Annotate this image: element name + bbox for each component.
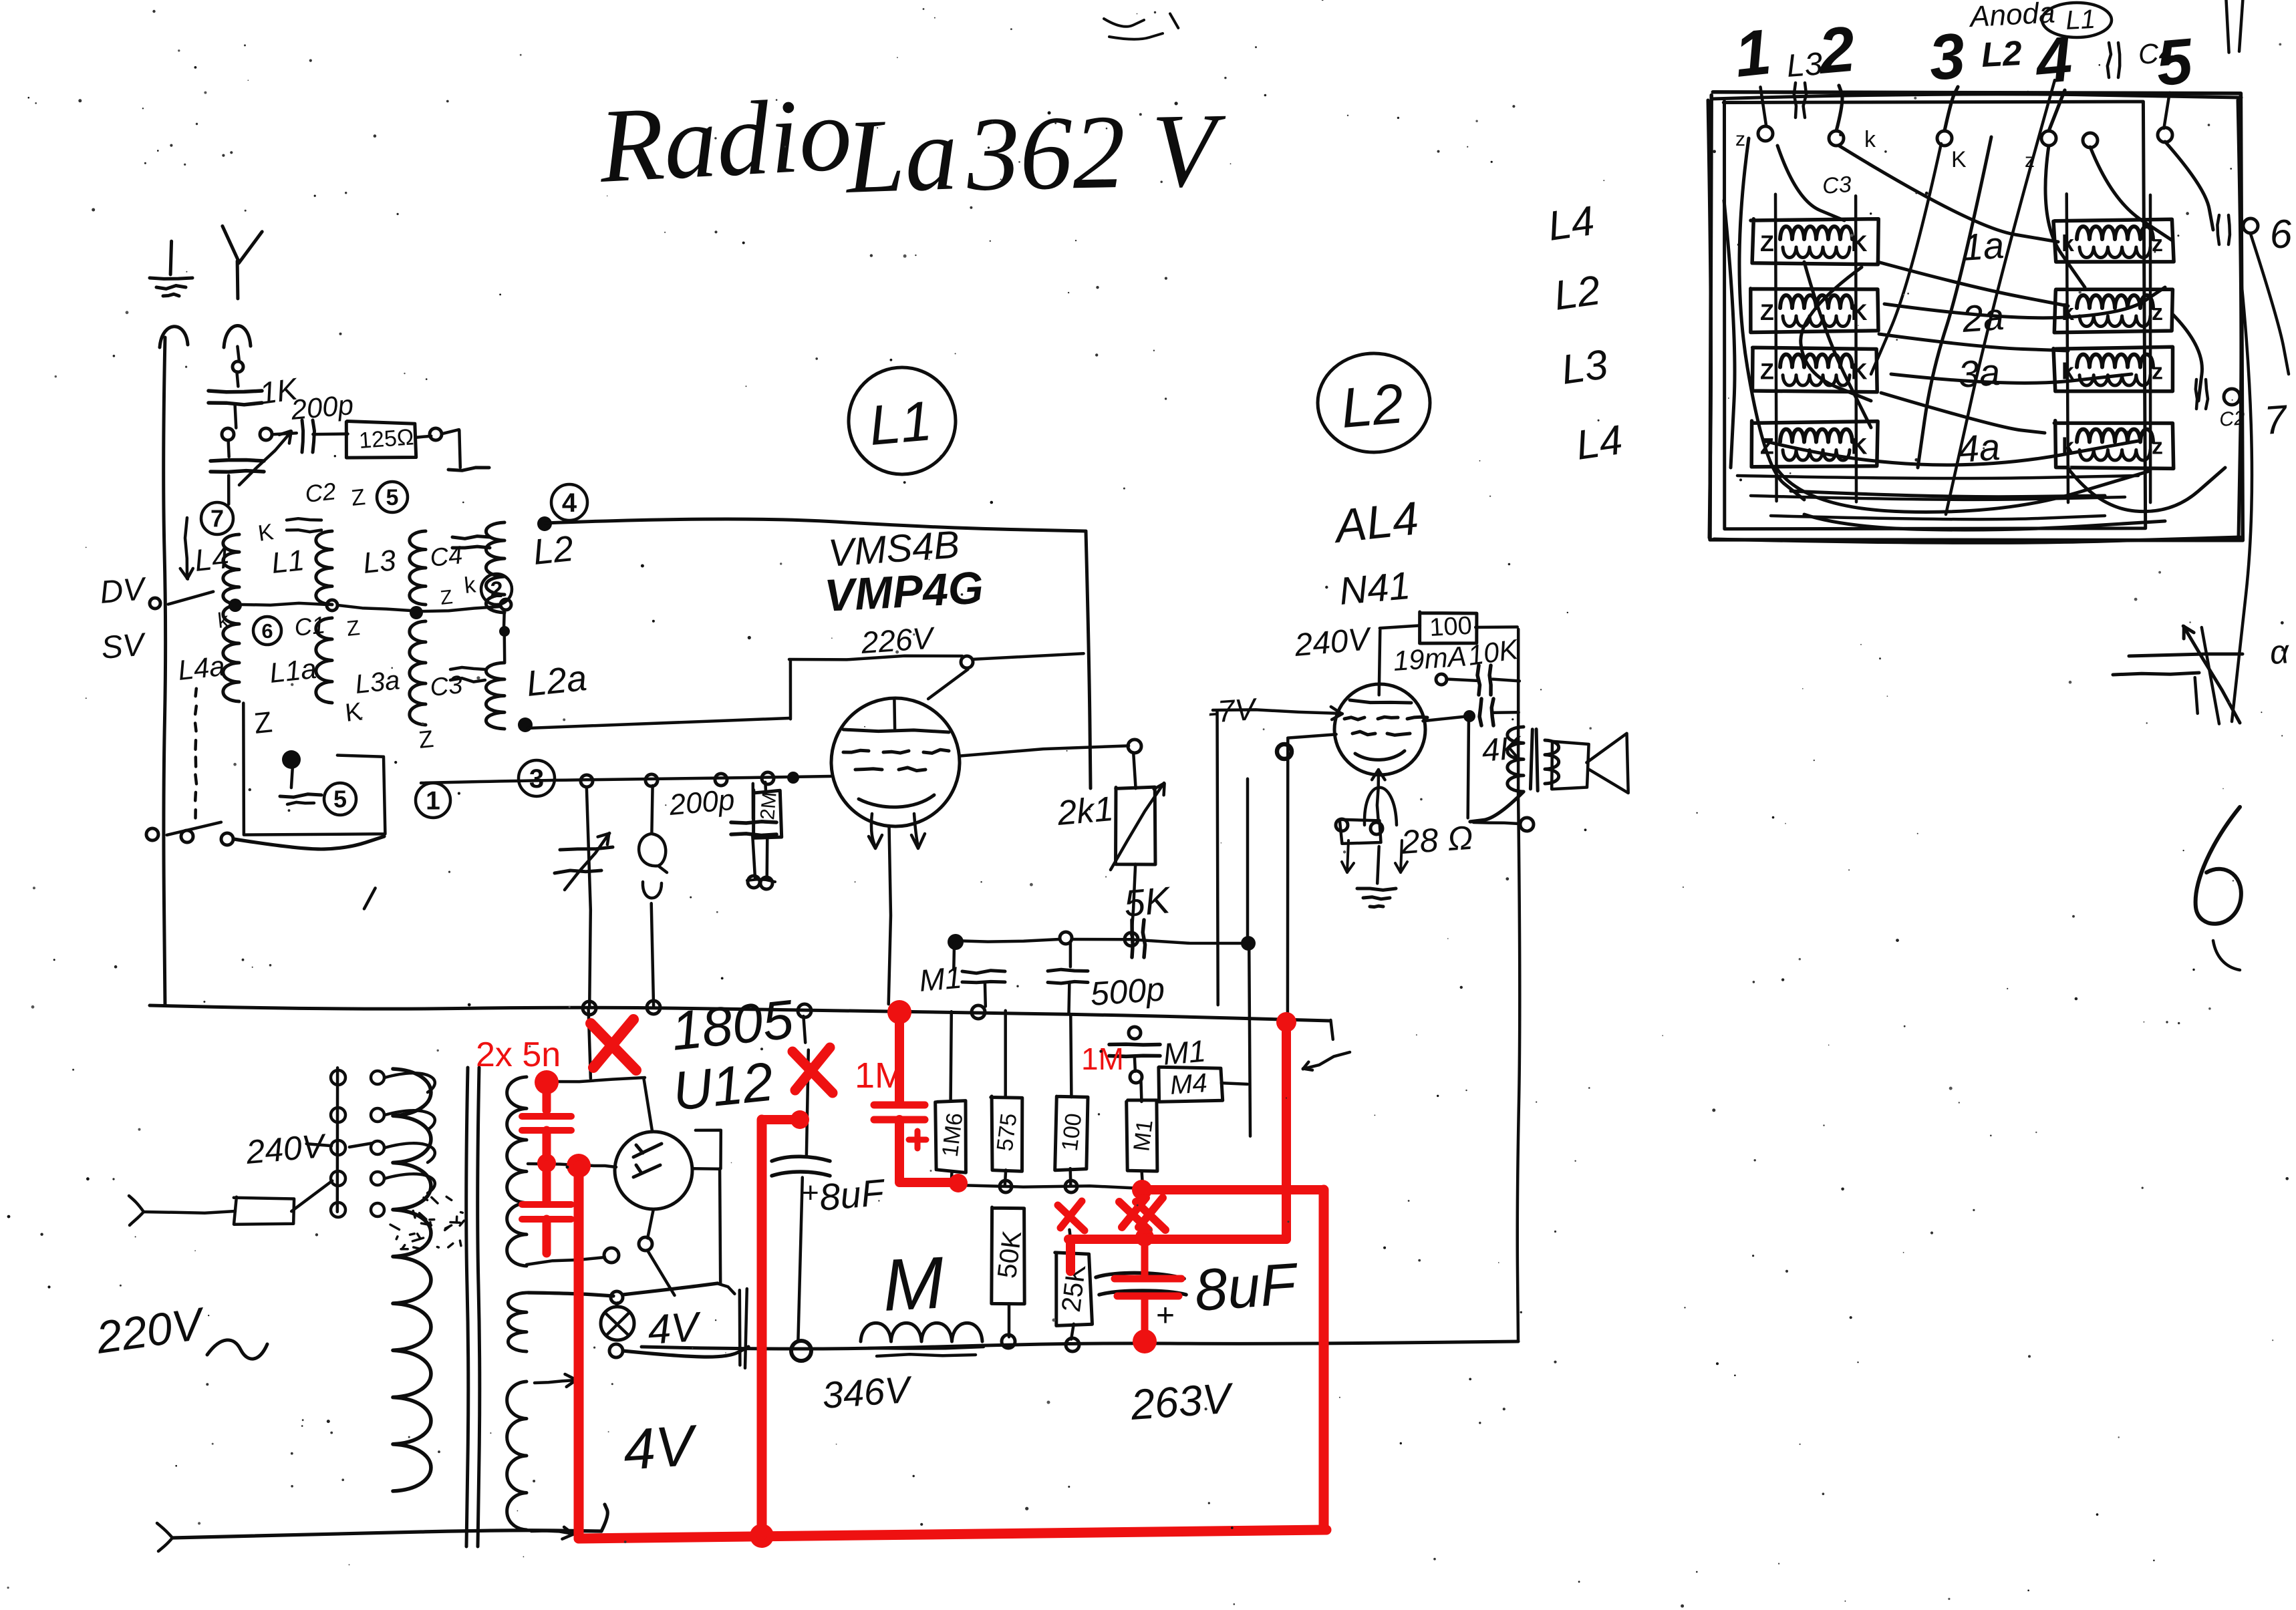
svg-text:240V: 240V bbox=[244, 1127, 329, 1171]
svg-text:L1: L1 bbox=[867, 389, 934, 457]
svg-text:+: + bbox=[802, 1176, 819, 1209]
svg-text:C3: C3 bbox=[429, 671, 464, 702]
svg-text:k: k bbox=[2061, 231, 2074, 257]
svg-text:L4: L4 bbox=[1573, 417, 1625, 469]
svg-text:Z: Z bbox=[1760, 300, 1774, 325]
svg-text:362 V: 362 V bbox=[966, 92, 1228, 213]
svg-text:8uF: 8uF bbox=[1192, 1250, 1300, 1323]
svg-text:263V: 263V bbox=[1129, 1374, 1236, 1429]
svg-text:2k1: 2k1 bbox=[1055, 790, 1115, 833]
svg-text:C1: C1 bbox=[293, 611, 327, 641]
svg-text:K: K bbox=[1851, 300, 1868, 325]
svg-text:C2: C2 bbox=[304, 477, 337, 508]
svg-text:+: + bbox=[1156, 1298, 1175, 1333]
svg-text:5K: 5K bbox=[1123, 878, 1173, 925]
svg-text:L1: L1 bbox=[270, 544, 306, 580]
svg-text:2M: 2M bbox=[756, 791, 781, 820]
svg-text:L2a: L2a bbox=[525, 658, 589, 704]
svg-text:U12: U12 bbox=[670, 1052, 776, 1122]
svg-text:1M6: 1M6 bbox=[938, 1112, 968, 1158]
svg-text:K: K bbox=[1851, 231, 1868, 257]
svg-text:Radio: Radio bbox=[596, 75, 855, 205]
svg-text:L4: L4 bbox=[1545, 198, 1597, 250]
svg-text:6: 6 bbox=[2268, 211, 2294, 257]
svg-text:2x 5n: 2x 5n bbox=[476, 1035, 561, 1074]
svg-text:L2: L2 bbox=[531, 528, 575, 573]
svg-text:1805: 1805 bbox=[668, 989, 796, 1062]
svg-text:VMP4G: VMP4G bbox=[823, 562, 985, 621]
svg-text:L2: L2 bbox=[1551, 267, 1603, 319]
svg-text:3: 3 bbox=[1926, 20, 1969, 94]
svg-text:226V: 226V bbox=[859, 620, 937, 660]
svg-text:La: La bbox=[843, 95, 960, 216]
svg-text:C3: C3 bbox=[1822, 172, 1852, 199]
svg-text:M: M bbox=[881, 1241, 946, 1327]
svg-text:19mA: 19mA bbox=[1392, 640, 1467, 677]
svg-text:C4: C4 bbox=[2137, 36, 2175, 70]
svg-text:N41: N41 bbox=[1337, 564, 1412, 613]
svg-text:7: 7 bbox=[210, 505, 224, 532]
svg-text:α: α bbox=[2269, 633, 2291, 671]
svg-text:100: 100 bbox=[1429, 612, 1473, 642]
svg-text:Z: Z bbox=[350, 484, 367, 511]
svg-text:200p: 200p bbox=[289, 389, 355, 426]
svg-text:SV: SV bbox=[100, 627, 148, 666]
svg-text:L2: L2 bbox=[1981, 34, 2023, 75]
svg-text:L3: L3 bbox=[1558, 341, 1610, 393]
svg-text:K: K bbox=[344, 698, 364, 728]
svg-text:K: K bbox=[1951, 147, 1967, 172]
svg-text:1: 1 bbox=[426, 787, 440, 816]
svg-text:M1: M1 bbox=[917, 960, 963, 998]
svg-text:Z: Z bbox=[439, 586, 454, 609]
svg-text:DV: DV bbox=[98, 571, 148, 611]
svg-text:125Ω: 125Ω bbox=[358, 424, 415, 454]
svg-text:L3: L3 bbox=[1785, 46, 1824, 84]
svg-text:z: z bbox=[2152, 434, 2163, 460]
svg-text:4: 4 bbox=[562, 488, 577, 518]
svg-text:z: z bbox=[1735, 128, 1745, 150]
svg-text:4K: 4K bbox=[1480, 730, 1524, 769]
svg-text:5: 5 bbox=[386, 485, 399, 510]
svg-text:L3: L3 bbox=[362, 544, 398, 580]
svg-text:k: k bbox=[1864, 127, 1876, 152]
svg-text:M4: M4 bbox=[1169, 1068, 1209, 1100]
svg-text:4V: 4V bbox=[621, 1413, 701, 1482]
svg-text:1M: 1M bbox=[1081, 1041, 1124, 1076]
svg-text:5: 5 bbox=[333, 786, 347, 813]
svg-text:3a: 3a bbox=[1957, 351, 2001, 395]
svg-text:C4: C4 bbox=[429, 541, 464, 573]
svg-text:L1: L1 bbox=[2065, 5, 2096, 35]
svg-text:500p: 500p bbox=[1089, 970, 1166, 1013]
svg-text:Z: Z bbox=[1760, 359, 1774, 385]
svg-text:Z: Z bbox=[345, 615, 361, 641]
svg-text:240V: 240V bbox=[1292, 621, 1373, 663]
svg-text:AL4: AL4 bbox=[1330, 492, 1421, 552]
svg-text:28 Ω: 28 Ω bbox=[1399, 819, 1474, 861]
svg-text:6: 6 bbox=[261, 619, 273, 643]
svg-text:z: z bbox=[2152, 359, 2163, 385]
svg-text:575: 575 bbox=[992, 1112, 1022, 1152]
svg-text:Z: Z bbox=[1760, 231, 1774, 257]
svg-text:z: z bbox=[2025, 150, 2035, 172]
svg-text:Z: Z bbox=[253, 705, 274, 740]
svg-text:L4a: L4a bbox=[176, 650, 227, 686]
svg-text:346V: 346V bbox=[821, 1368, 913, 1416]
svg-text:8uF: 8uF bbox=[818, 1171, 887, 1219]
svg-text:K: K bbox=[1851, 359, 1868, 385]
svg-text:z: z bbox=[2152, 300, 2163, 325]
svg-text:1: 1 bbox=[1731, 16, 1774, 91]
svg-text:C2: C2 bbox=[2218, 407, 2246, 431]
svg-text:Z: Z bbox=[418, 725, 435, 754]
svg-text:L3a: L3a bbox=[353, 665, 401, 699]
svg-text:100: 100 bbox=[1057, 1112, 1087, 1152]
svg-text:50K: 50K bbox=[992, 1229, 1027, 1280]
svg-text:M1: M1 bbox=[1129, 1118, 1157, 1153]
svg-text:K: K bbox=[1851, 434, 1868, 460]
svg-text:L2: L2 bbox=[1338, 371, 1406, 440]
svg-text:200p: 200p bbox=[668, 784, 736, 822]
svg-text:-7V: -7V bbox=[1206, 691, 1259, 730]
